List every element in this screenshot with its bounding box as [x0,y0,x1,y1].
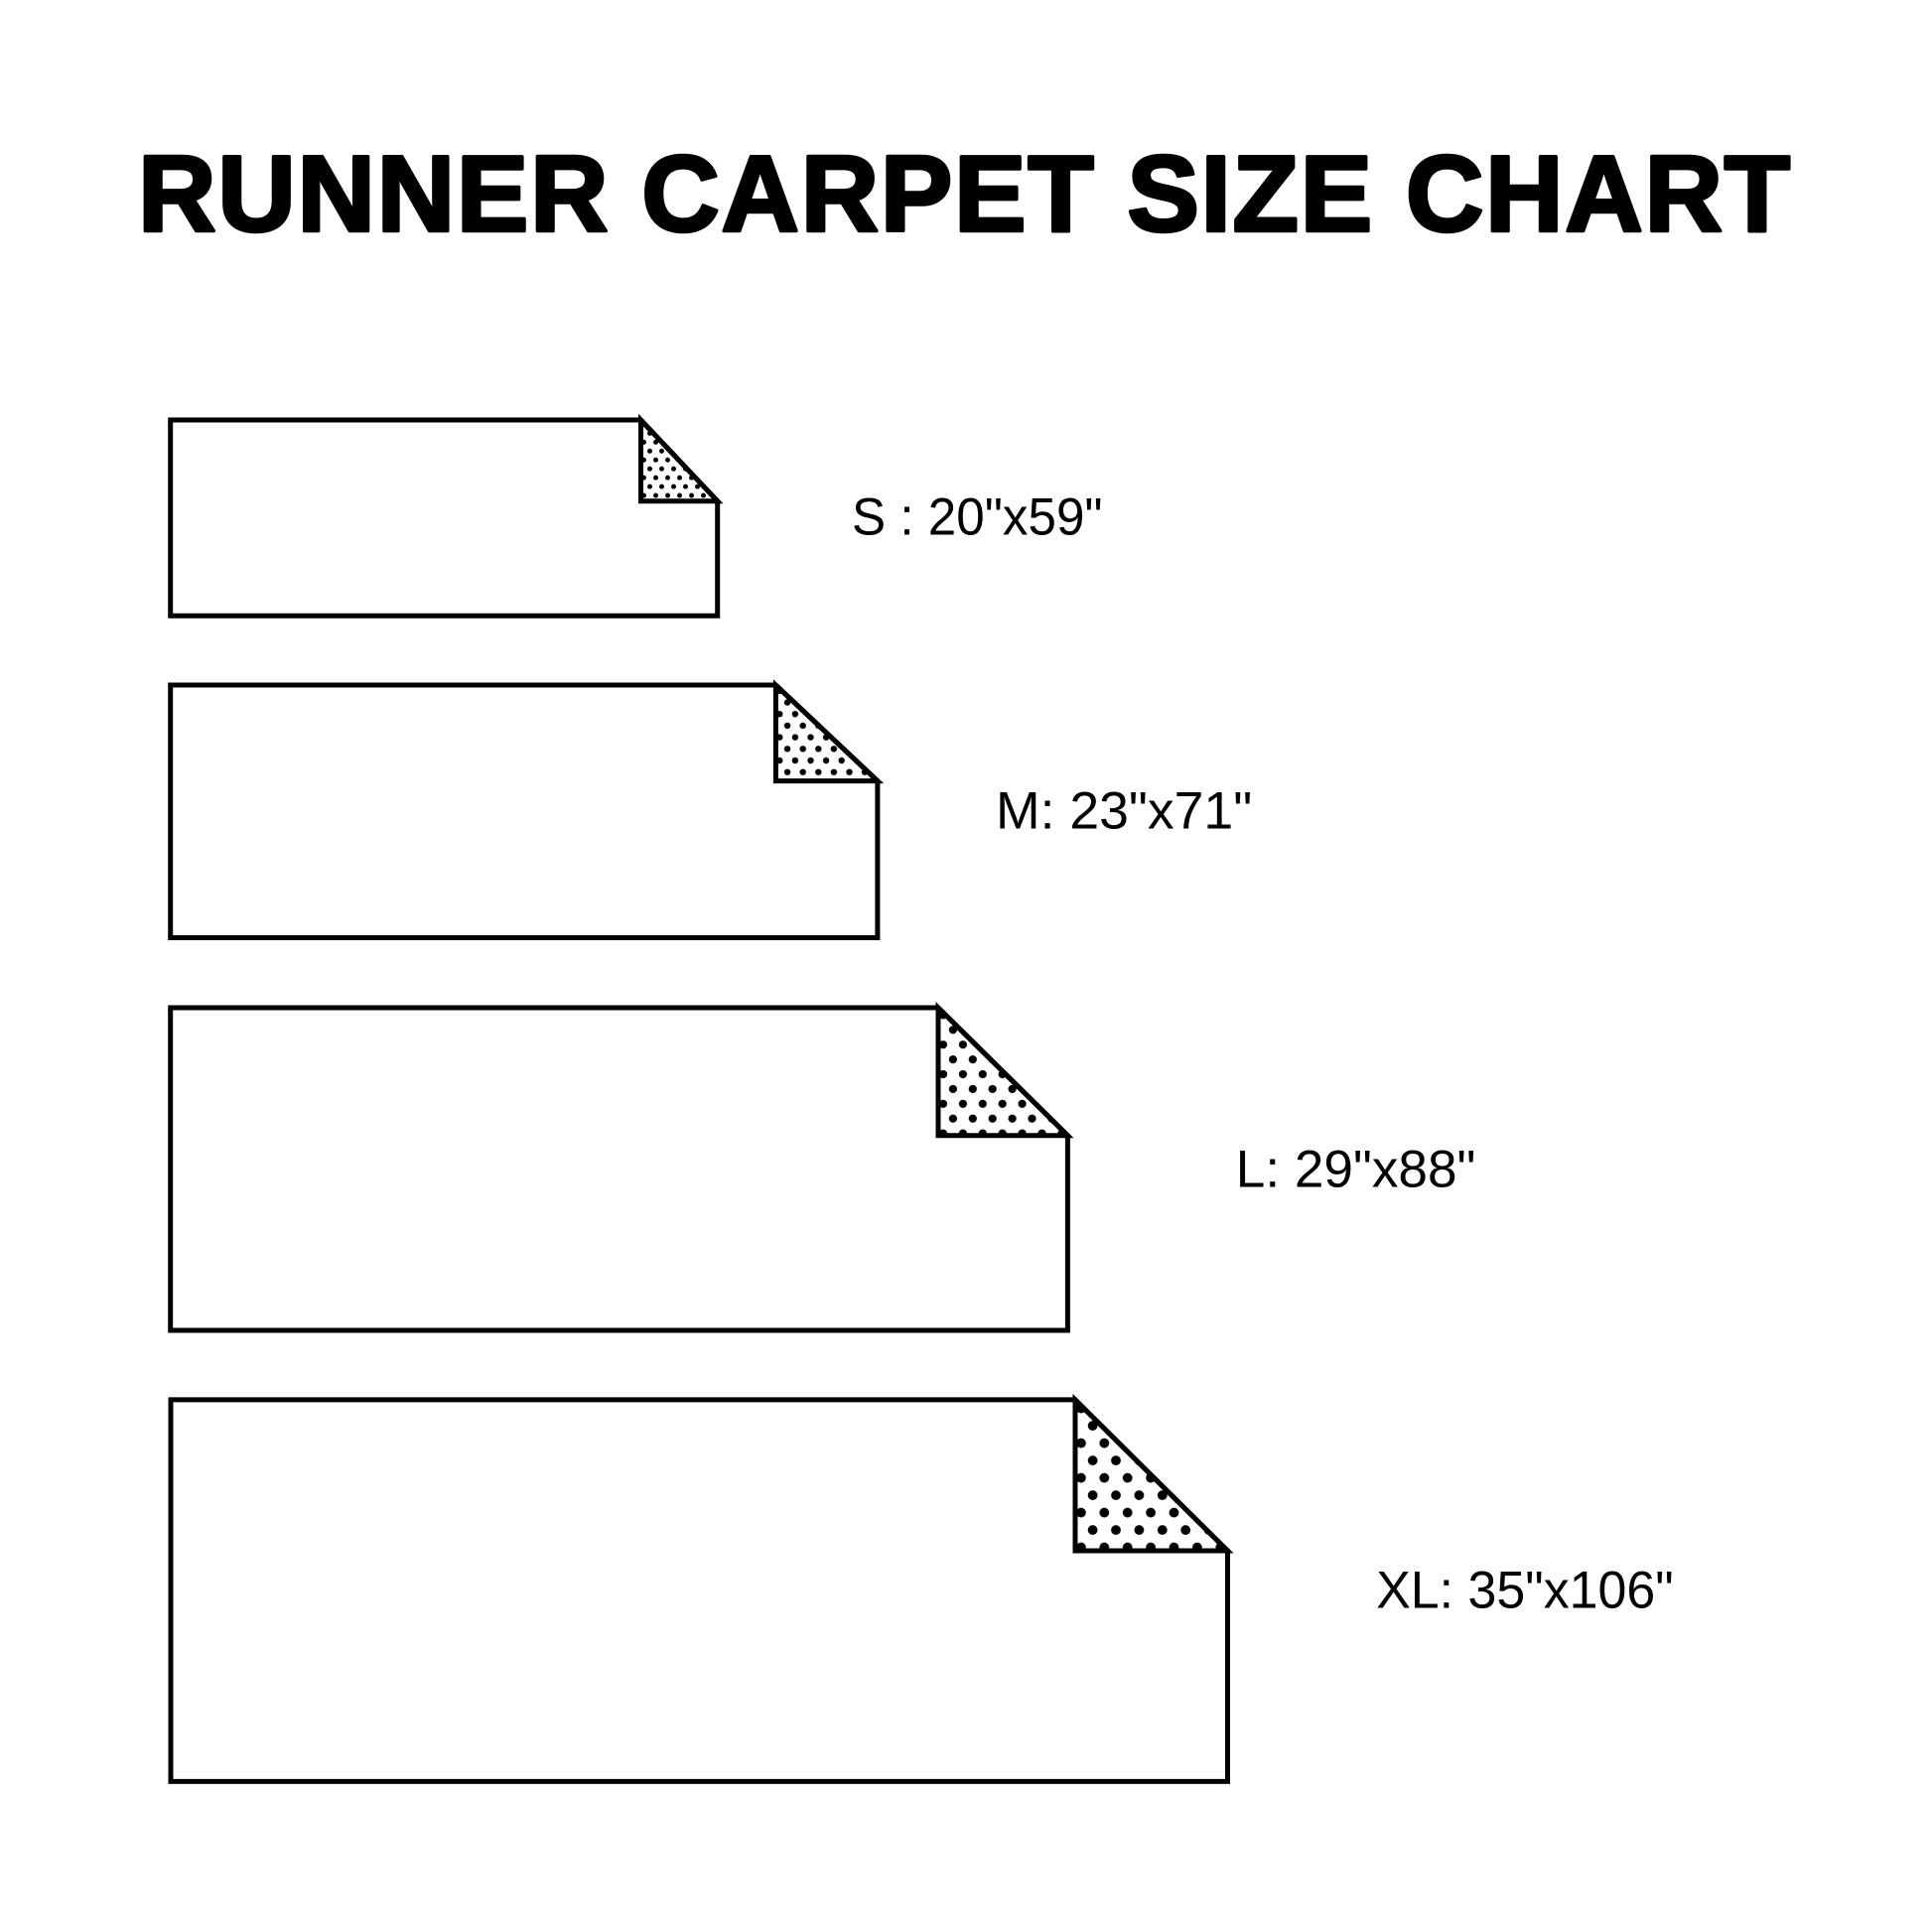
svg-text:M: 23"x71": M: 23"x71" [996,782,1252,841]
svg-text:S : 20"x59": S : 20"x59" [852,488,1103,547]
svg-text:RUNNER CARPET SIZE CHART: RUNNER CARPET SIZE CHART [138,133,1790,253]
svg-text:L: 29"x88": L: 29"x88" [1236,1141,1476,1199]
svg-text:XL: 35"x106": XL: 35"x106" [1376,1562,1674,1620]
